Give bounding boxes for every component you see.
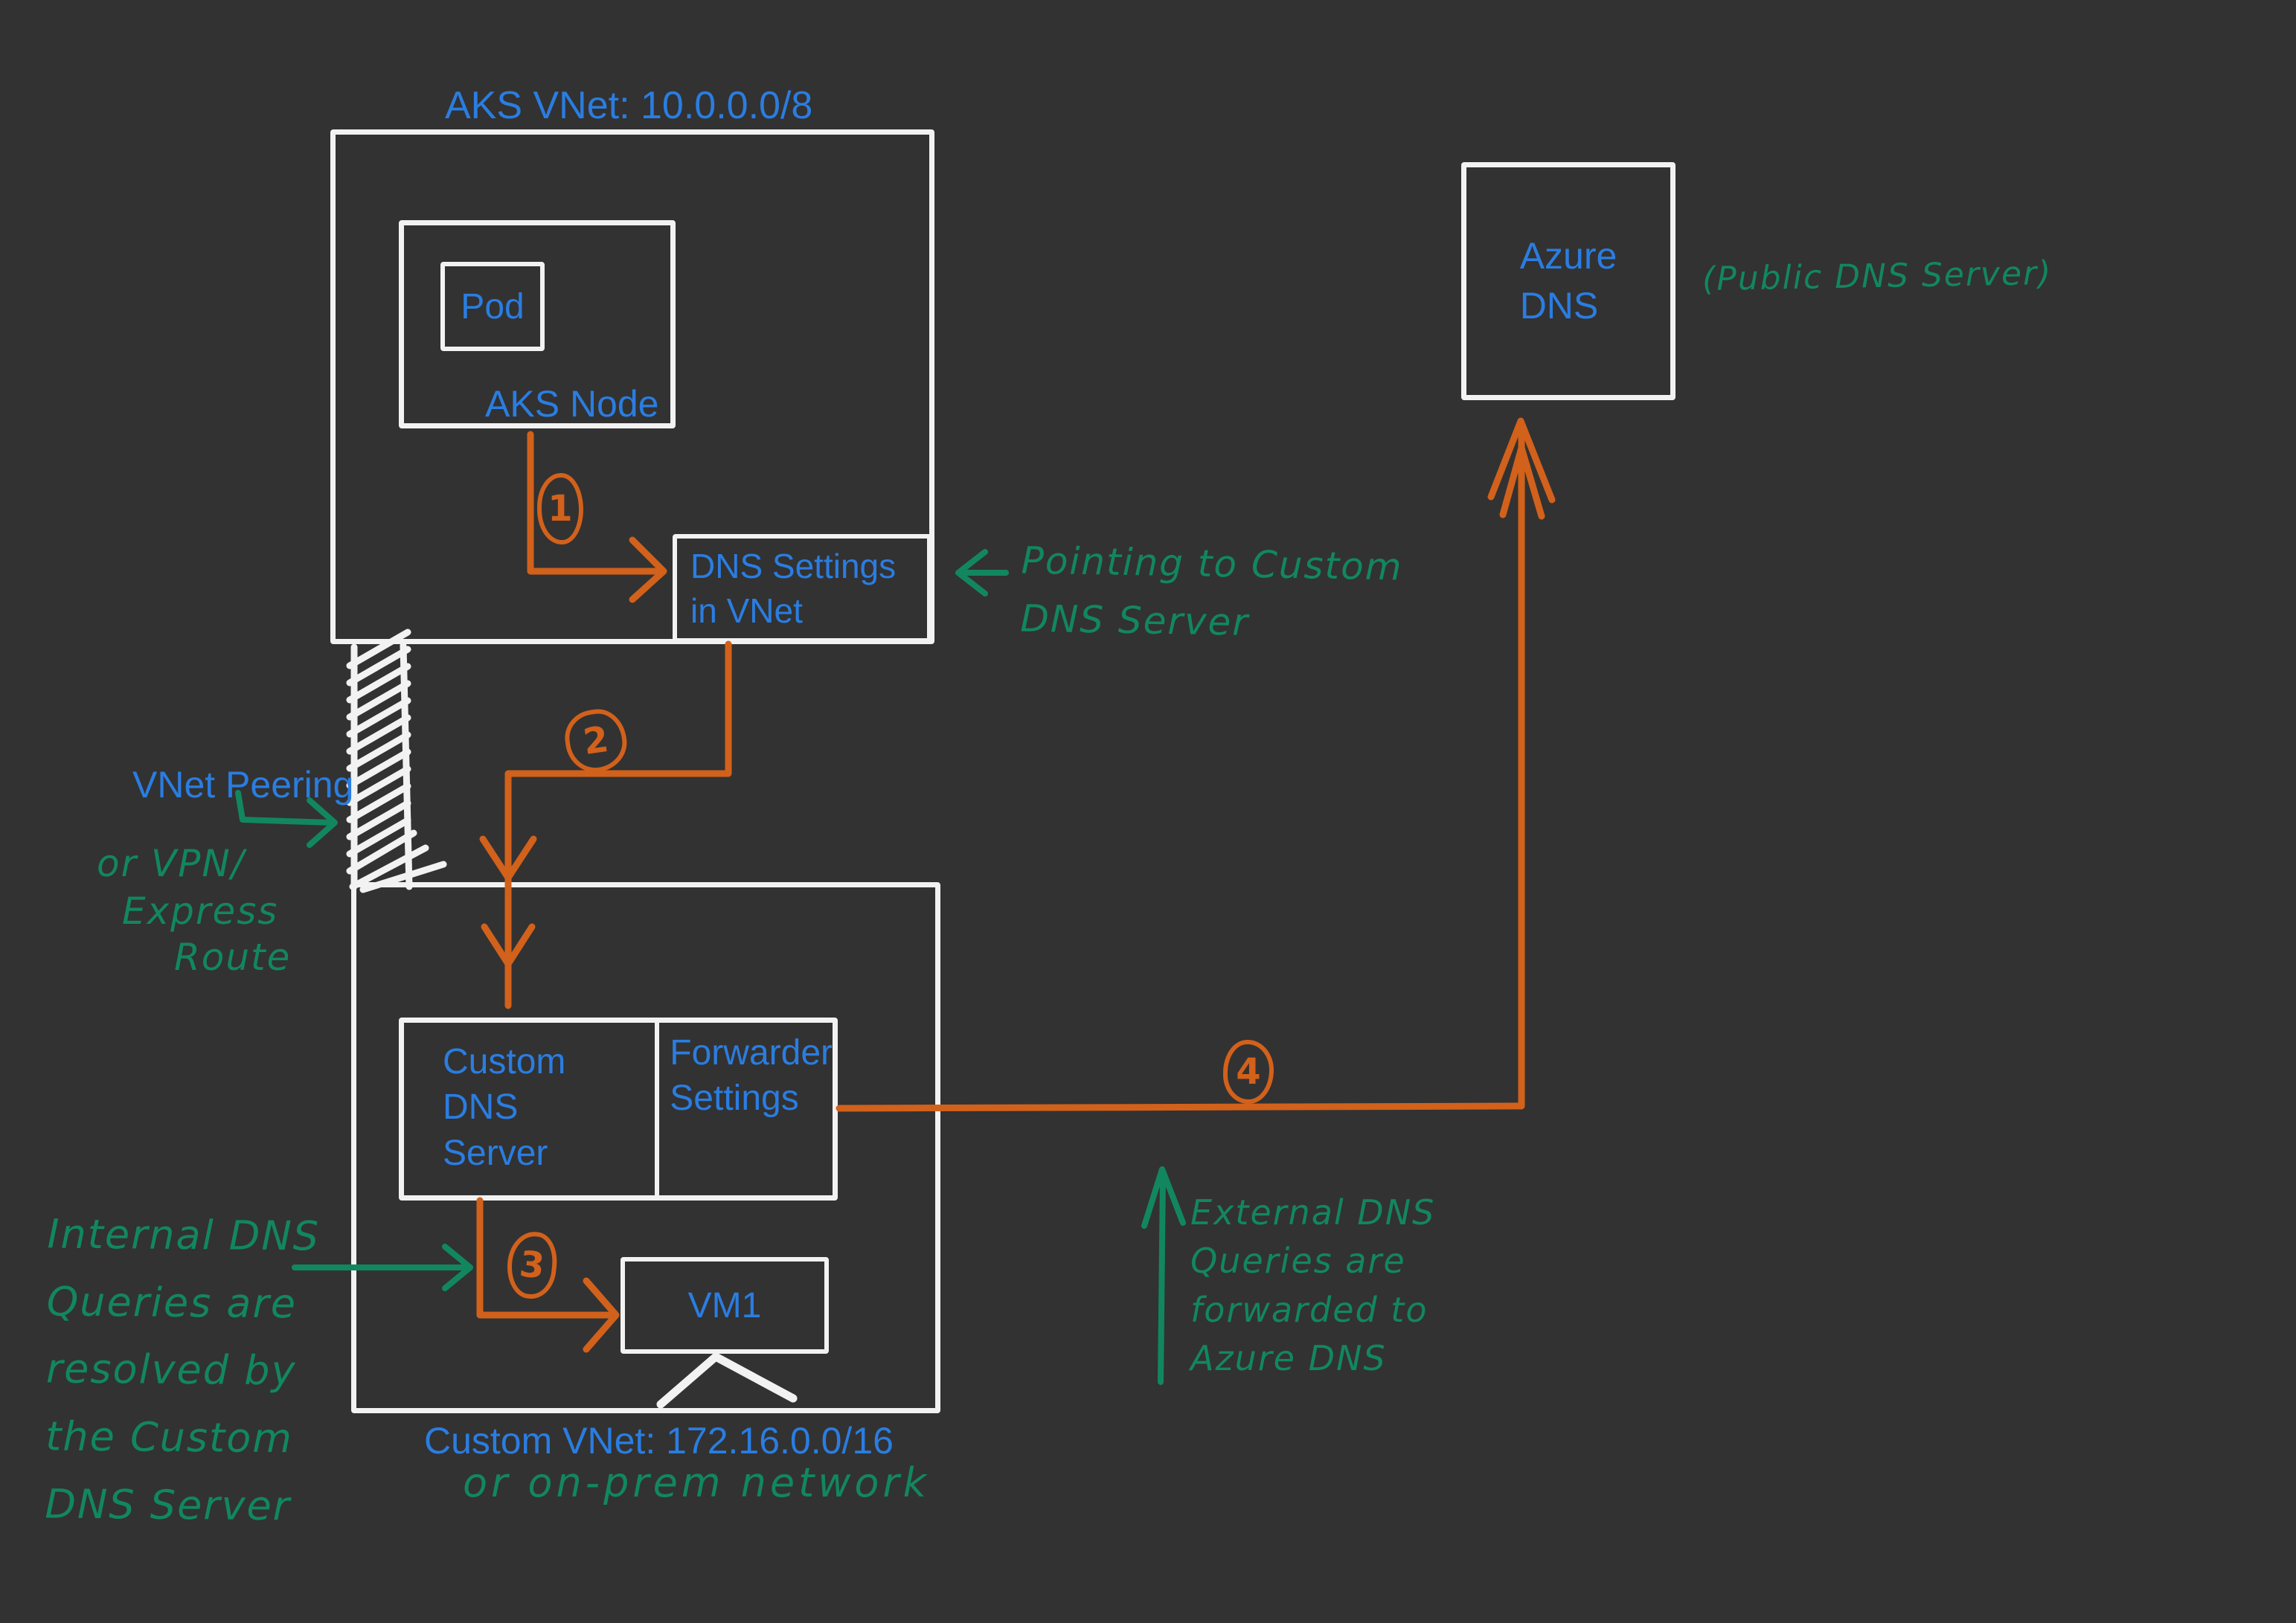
step-4-number: 4 xyxy=(1236,1051,1260,1093)
vpn-alt-note-line1: or VPN/ xyxy=(97,842,246,885)
forwarder-settings-cell: Forwarder Settings xyxy=(659,1023,833,1195)
pointing-to-custom-dns-note: Pointing to Custom DNS Server xyxy=(1020,533,1403,655)
vnet-peering-arrowhead xyxy=(310,800,335,845)
custom-dns-server-cell: Custom DNS Server xyxy=(404,1023,659,1195)
vnet-peering-hatched-band xyxy=(350,632,443,890)
on-prem-alt-note: or on-prem network xyxy=(463,1459,930,1506)
vm1-label: VM1 xyxy=(688,1285,762,1326)
step-badge-4: 4 xyxy=(1223,1040,1274,1104)
aks-vnet-title: AKS VNet: 10.0.0.0/8 xyxy=(445,83,812,128)
dns-settings-label: DNS Settings in VNet xyxy=(690,544,896,634)
custom-vnet-title: Custom VNet: 172.16.0.0/16 xyxy=(424,1419,894,1462)
external-queries-arrowhead xyxy=(1144,1169,1183,1226)
step-badge-1: 1 xyxy=(537,473,583,544)
step-2-number: 2 xyxy=(581,719,612,763)
pointing-note-arrowhead xyxy=(958,552,985,594)
step-3-number: 3 xyxy=(517,1243,546,1287)
flow4-forwarder-to-azuredns-arrow xyxy=(839,428,1521,1108)
custom-dns-forwarder-box: Custom DNS Server Forwarder Settings xyxy=(399,1018,838,1201)
forwarder-settings-label: Forwarder Settings xyxy=(670,1030,833,1122)
vpn-alt-note-line2: Express xyxy=(122,890,278,933)
custom-dns-server-label: Custom DNS Server xyxy=(443,1039,655,1176)
internal-queries-note: Internal DNS Queries are resolved by the… xyxy=(45,1201,320,1540)
whiteboard-diagram: Custom DNS Server Forwarder Settings VM1 xyxy=(0,0,2296,1623)
azure-dns-label: Azure DNS xyxy=(1461,162,1675,400)
step-badge-2: 2 xyxy=(562,706,631,777)
flow4-arrowhead-inner xyxy=(1503,448,1542,516)
vm1-box: VM1 xyxy=(621,1257,829,1354)
external-queries-arrow xyxy=(1161,1174,1163,1382)
vpn-alt-note-line3: Route xyxy=(174,936,291,979)
flow4-arrowhead-outer xyxy=(1491,421,1552,500)
vnet-peering-label: VNet Peering xyxy=(132,763,353,806)
pod-label: Pod xyxy=(440,262,545,351)
external-queries-note: External DNS Queries are forwarded to Az… xyxy=(1190,1189,1435,1383)
step-1-number: 1 xyxy=(548,488,572,530)
aks-node-label: AKS Node xyxy=(485,382,658,425)
flow2-arrowhead-border xyxy=(483,839,533,878)
public-dns-note: (Public DNS Server) xyxy=(1702,254,2053,298)
